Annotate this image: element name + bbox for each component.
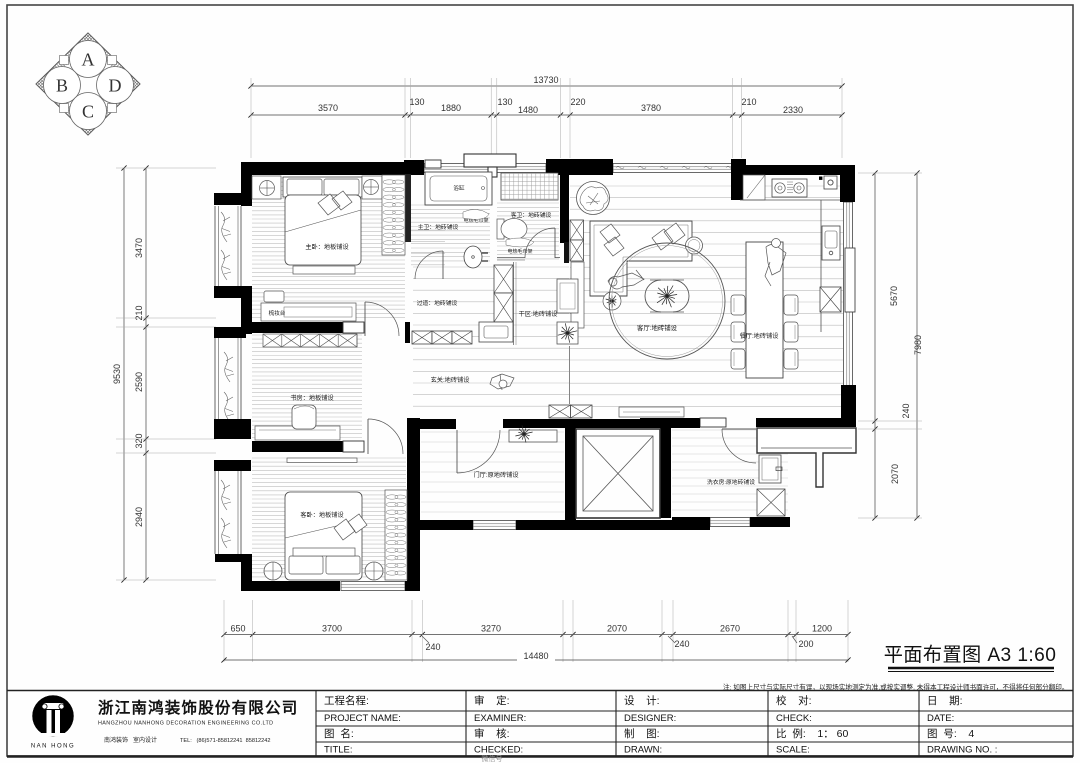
- svg-text:CHECK:: CHECK:: [776, 713, 812, 724]
- svg-text:2670: 2670: [720, 624, 740, 634]
- svg-text:主卧：地板铺设: 主卧：地板铺设: [305, 243, 348, 251]
- svg-text:1480: 1480: [518, 105, 538, 115]
- svg-text:A: A: [82, 50, 95, 70]
- svg-text:650: 650: [230, 624, 245, 634]
- svg-text:3780: 3780: [641, 103, 661, 113]
- svg-text:200: 200: [798, 639, 813, 649]
- svg-text:日 期:: 日 期:: [927, 695, 963, 707]
- svg-text:3570: 3570: [318, 103, 338, 113]
- svg-text:220: 220: [570, 97, 585, 107]
- svg-text:SCALE:: SCALE:: [776, 745, 810, 756]
- svg-text:微信号: 微信号: [482, 754, 503, 763]
- svg-text:主卫：地砖铺设: 主卫：地砖铺设: [418, 223, 459, 231]
- svg-text:平面布置图 A3 1:60: 平面布置图 A3 1:60: [884, 644, 1057, 666]
- svg-text:客卫：地砖铺设: 客卫：地砖铺设: [511, 211, 552, 219]
- svg-text:南鸿装饰 室内设计: 南鸿装饰 室内设计: [104, 736, 157, 744]
- svg-text:门厅:原地砖铺设: 门厅:原地砖铺设: [473, 471, 518, 479]
- svg-text:DRAWING NO. :: DRAWING NO. :: [927, 745, 997, 756]
- svg-text:PROJECT NAME:: PROJECT NAME:: [324, 713, 401, 724]
- svg-text:审 核:: 审 核:: [474, 727, 510, 740]
- svg-text:C: C: [82, 102, 94, 122]
- svg-text:3470: 3470: [134, 238, 144, 258]
- svg-text:2330: 2330: [783, 105, 803, 115]
- svg-text:320: 320: [134, 433, 144, 448]
- svg-text:130: 130: [497, 97, 512, 107]
- svg-text:干区:地砖铺设: 干区:地砖铺设: [519, 310, 558, 318]
- svg-text:5670: 5670: [889, 286, 899, 306]
- svg-text:13730: 13730: [533, 75, 558, 85]
- svg-text:梳妆台: 梳妆台: [269, 309, 286, 317]
- svg-text:2590: 2590: [134, 372, 144, 392]
- svg-text:210: 210: [134, 305, 144, 320]
- svg-text:B: B: [56, 76, 68, 96]
- svg-text:过道：地砖铺设: 过道：地砖铺设: [417, 299, 458, 307]
- svg-text:CHECKED:: CHECKED:: [474, 745, 523, 756]
- svg-text:240: 240: [901, 403, 911, 418]
- svg-text:9530: 9530: [112, 364, 122, 384]
- svg-text:工程名程:: 工程名程:: [324, 694, 369, 707]
- svg-text:书房：地板铺设: 书房：地板铺设: [290, 394, 333, 402]
- svg-text:3270: 3270: [481, 624, 501, 634]
- svg-text:校 对:: 校 对:: [776, 694, 812, 707]
- svg-text:图 号: 4: 图 号: 4: [927, 728, 974, 740]
- svg-text:DESIGNER:: DESIGNER:: [624, 713, 676, 724]
- svg-text:210: 210: [741, 97, 756, 107]
- svg-text:1200: 1200: [812, 624, 832, 634]
- svg-text:客厅:地砖铺设: 客厅:地砖铺设: [637, 323, 678, 332]
- svg-text:2940: 2940: [134, 507, 144, 527]
- svg-text:3700: 3700: [322, 624, 342, 634]
- svg-text:洗衣房:原地砖铺设: 洗衣房:原地砖铺设: [707, 478, 755, 486]
- svg-text:7980: 7980: [913, 335, 923, 355]
- svg-text:TEL: (86)571-85812241 85812: TEL: (86)571-85812241 85812242: [180, 738, 271, 744]
- svg-text:图 名:: 图 名:: [324, 727, 354, 740]
- svg-text:制 图:: 制 图:: [624, 727, 660, 740]
- svg-text:D: D: [109, 76, 122, 96]
- svg-text:比 例: 1： 60: 比 例: 1： 60: [776, 727, 849, 740]
- svg-text:玄关:地砖铺设: 玄关:地砖铺设: [431, 376, 470, 384]
- svg-text:客卧：地板铺设: 客卧：地板铺设: [300, 511, 343, 519]
- svg-text:1880: 1880: [441, 103, 461, 113]
- svg-text:餐厅:地砖铺设: 餐厅:地砖铺设: [740, 332, 779, 340]
- svg-text:2070: 2070: [890, 464, 900, 484]
- svg-text:240: 240: [674, 639, 689, 649]
- svg-text:2070: 2070: [607, 624, 627, 634]
- svg-text:130: 130: [409, 97, 424, 107]
- svg-text:浙江南鸿装饰股份有限公司: 浙江南鸿装饰股份有限公司: [98, 698, 298, 717]
- svg-text:EXAMINER:: EXAMINER:: [474, 713, 526, 724]
- svg-text:NAN HONG: NAN HONG: [31, 744, 75, 750]
- svg-text:TITLE:: TITLE:: [324, 745, 353, 756]
- svg-text:审 定:: 审 定:: [474, 694, 510, 707]
- svg-text:HANGZHOU NANHONG DECORATION EN: HANGZHOU NANHONG DECORATION ENGINEERING …: [98, 721, 273, 727]
- svg-text:DATE:: DATE:: [927, 713, 954, 724]
- svg-text:14480: 14480: [523, 651, 548, 661]
- svg-text:电热毛巾架: 电热毛巾架: [507, 248, 532, 255]
- svg-text:DRAWN:: DRAWN:: [624, 745, 662, 756]
- svg-text:浴缸: 浴缸: [453, 184, 465, 192]
- svg-text:240: 240: [425, 642, 440, 652]
- svg-text:设 计:: 设 计:: [624, 694, 660, 707]
